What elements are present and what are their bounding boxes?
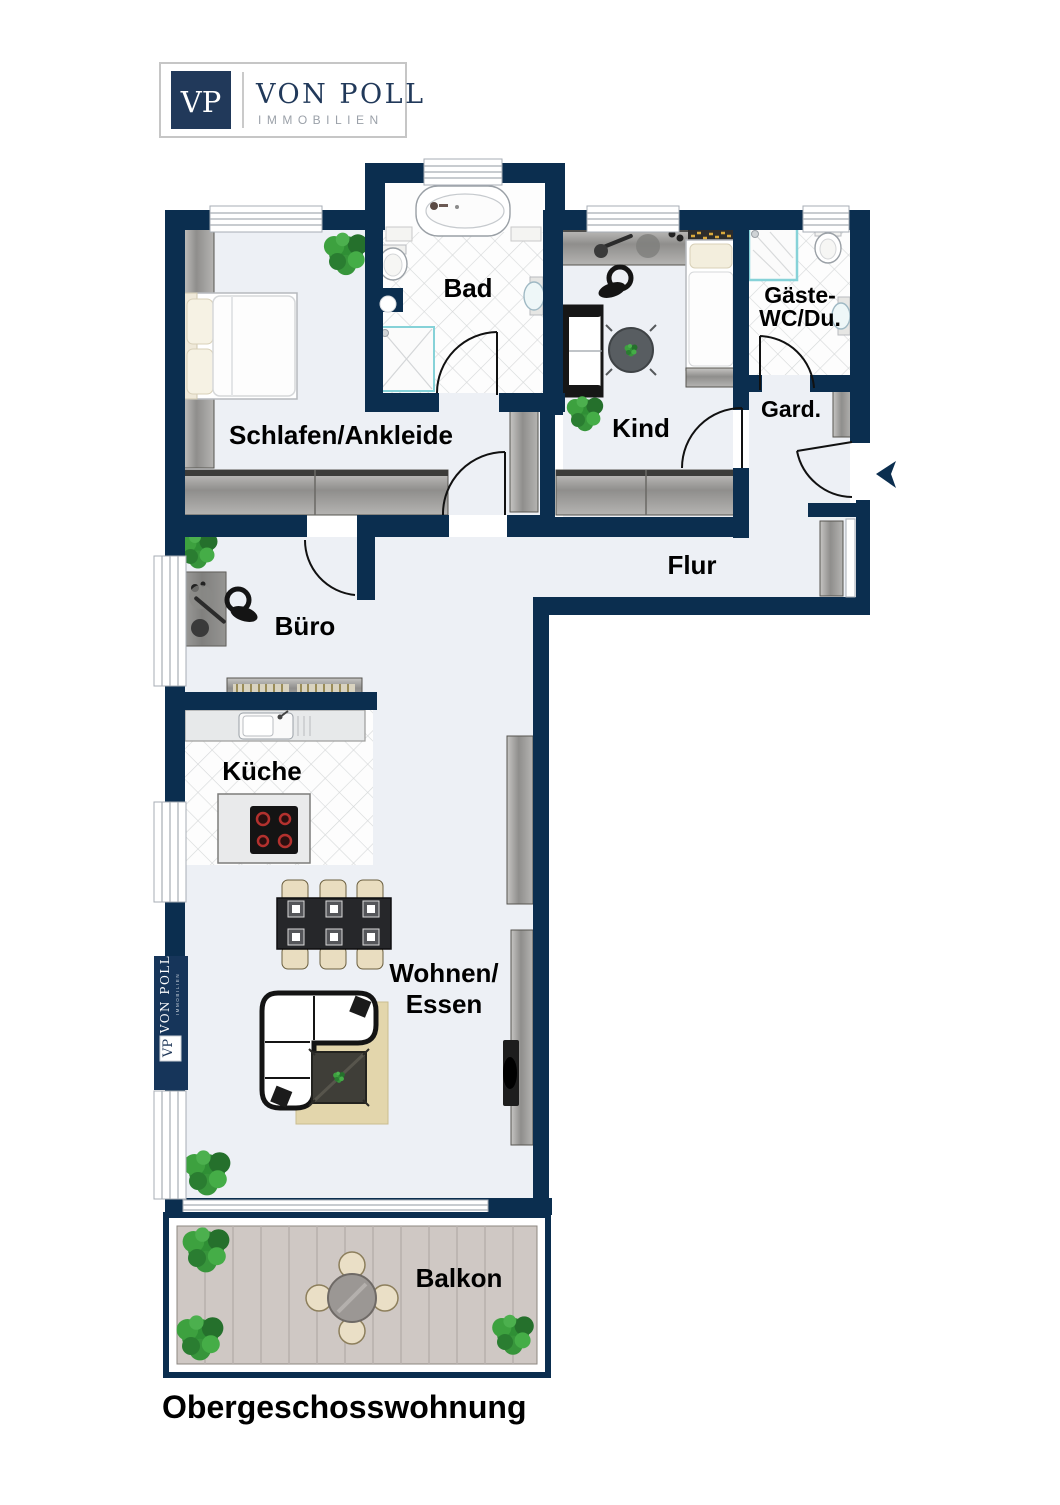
room-label-bad: Bad bbox=[443, 273, 492, 303]
cabinet-gard bbox=[833, 385, 852, 437]
wall-schlafen-bottom-a bbox=[165, 515, 307, 537]
sofa-kind bbox=[558, 306, 602, 396]
shower-bad bbox=[379, 327, 434, 391]
tv-lowboard bbox=[503, 1040, 519, 1106]
wall-wohnen-right bbox=[533, 615, 549, 1213]
logo-brand-text: VON POLL bbox=[255, 79, 426, 110]
shelf-wohnen-1 bbox=[507, 736, 533, 904]
wall-gaeste-bottom-right bbox=[810, 375, 853, 392]
window-schlafen bbox=[210, 206, 322, 232]
bath-shelf-left bbox=[386, 227, 412, 241]
bath-column-cap bbox=[380, 296, 396, 312]
room-label-kind: Kind bbox=[612, 413, 670, 443]
window-bad bbox=[424, 159, 502, 185]
cabinet-entry-niche bbox=[820, 521, 843, 596]
wall-bad-kind bbox=[543, 230, 563, 415]
wardrobe-schlafen-left-bottom bbox=[182, 398, 214, 468]
watermark-monogram: VP bbox=[161, 1039, 176, 1058]
window-kueche bbox=[154, 802, 186, 902]
desk-buero bbox=[182, 572, 227, 646]
room-label-kueche: Küche bbox=[222, 756, 301, 786]
wall-watermark: VON POLL IMMOBILIEN VP bbox=[154, 955, 188, 1090]
logo-monogram: VP bbox=[180, 85, 221, 119]
single-bed-kind bbox=[686, 240, 736, 387]
room-label-balkon: Balkon bbox=[416, 1263, 503, 1293]
balcony bbox=[166, 1215, 548, 1375]
window-kind bbox=[587, 206, 679, 232]
wall-buero-bottom bbox=[165, 692, 377, 710]
coffee-table bbox=[309, 1049, 369, 1106]
room-label-wohnen-line1: Wohnen/ bbox=[389, 958, 498, 988]
watermark-division: IMMOBILIEN bbox=[175, 973, 180, 1016]
wall-bad-bottom-left bbox=[365, 393, 439, 412]
double-bed bbox=[183, 293, 297, 399]
kitchen-island bbox=[218, 794, 310, 863]
floor-plan-page: VP VON POLL IMMOBILIEN bbox=[0, 0, 1060, 1500]
window-terrace-door bbox=[183, 1200, 488, 1214]
room-label-flur: Flur bbox=[667, 550, 716, 580]
window-niche-slit bbox=[846, 519, 855, 597]
window-wohnen-left bbox=[154, 1091, 186, 1199]
entrance-arrow-icon bbox=[876, 461, 896, 488]
bathtub bbox=[416, 186, 510, 236]
wall-bad-left bbox=[365, 163, 385, 230]
logo: VP VON POLL IMMOBILIEN bbox=[160, 63, 426, 137]
shelf-wohnen-2 bbox=[511, 930, 533, 1145]
wall-right-upper bbox=[850, 210, 870, 443]
room-label-schlafen: Schlafen/Ankleide bbox=[229, 420, 453, 450]
floor-plan-canvas: VP VON POLL IMMOBILIEN bbox=[0, 0, 1060, 1500]
logo-division-text: IMMOBILIEN bbox=[258, 113, 384, 127]
wardrobe-schlafen-left-top bbox=[182, 228, 214, 296]
toilet-bad bbox=[379, 245, 407, 280]
plan-title: Obergeschosswohnung bbox=[162, 1389, 526, 1425]
wall-niche-top bbox=[808, 503, 870, 517]
room-label-wohnen-line2: Essen bbox=[406, 989, 483, 1019]
wall-flur-bottom bbox=[533, 597, 870, 615]
watermark-brand: VON POLL bbox=[158, 955, 172, 1034]
room-label-gard: Gard. bbox=[761, 396, 821, 422]
room-label-buero: Büro bbox=[275, 611, 336, 641]
shower-gaeste bbox=[749, 228, 797, 280]
wall-schlafen-kind-stub bbox=[540, 412, 555, 517]
bath-shelf-right bbox=[511, 227, 541, 241]
wall-kind-bottom bbox=[543, 517, 749, 537]
wall-buero-stub bbox=[357, 537, 375, 600]
window-gaeste bbox=[803, 206, 849, 232]
room-label-gaeste-line2: WC/Du. bbox=[759, 305, 841, 331]
wall-schlafen-bottom-b bbox=[357, 515, 449, 537]
wall-bad-bottom-right bbox=[499, 393, 565, 412]
window-buero bbox=[154, 556, 186, 686]
wall-gaeste-bottom-left bbox=[733, 375, 762, 392]
dining-set bbox=[277, 880, 391, 969]
kitchen-counter bbox=[185, 710, 365, 741]
wardrobe-schlafen-right bbox=[510, 400, 538, 512]
